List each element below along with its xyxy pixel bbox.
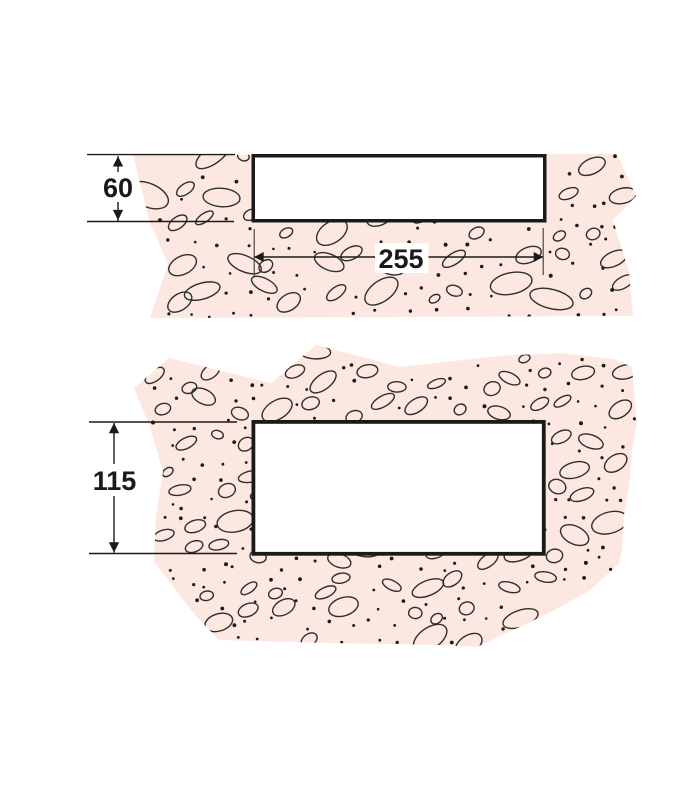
svg-text:115: 115 (93, 466, 137, 496)
svg-text:60: 60 (103, 173, 133, 203)
svg-text:255: 255 (378, 244, 423, 274)
